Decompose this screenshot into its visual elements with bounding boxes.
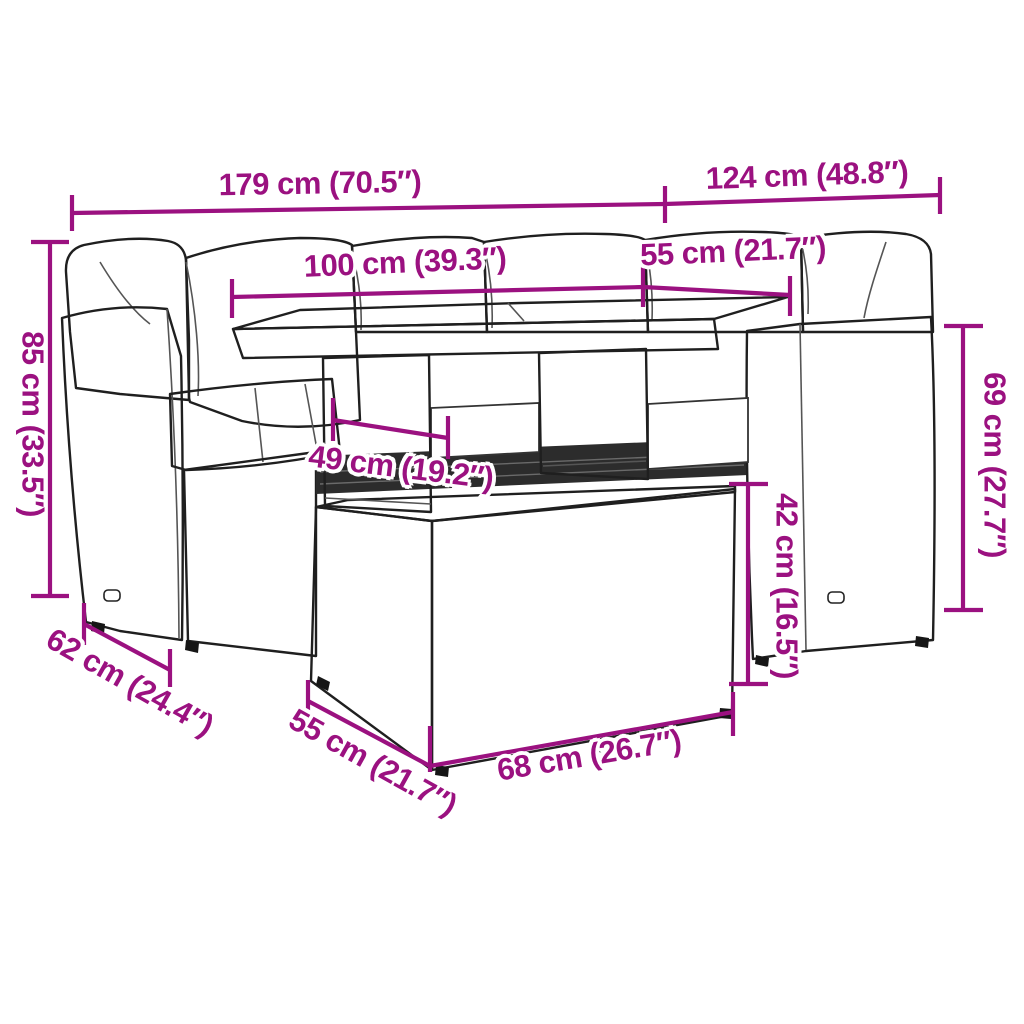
left-sofa-front <box>91 452 316 656</box>
dim-label-total-width: 179 cm (70.5″) <box>218 166 421 201</box>
dim-label-table-length: 100 cm (39.3″) <box>303 242 507 282</box>
dim-label-arm-height: 69 cm (27.7″) <box>980 372 1011 558</box>
vent-hole <box>828 592 844 603</box>
dim-label-stool-height: 42 cm (16.5″) <box>772 493 803 679</box>
furniture-illustration <box>0 0 1024 1024</box>
dim-label-table-depth: 55 cm (21.7″) <box>639 231 826 270</box>
dimension-diagram: 179 cm (70.5″) 124 cm (48.8″) 100 cm (39… <box>0 0 1024 1024</box>
sofa-foot <box>915 636 929 648</box>
dim-label-side-width: 124 cm (48.8″) <box>705 156 909 194</box>
dim-label-back-height: 85 cm (33.5″) <box>18 331 49 517</box>
vent-hole <box>104 590 120 601</box>
left-armrest <box>62 307 183 640</box>
